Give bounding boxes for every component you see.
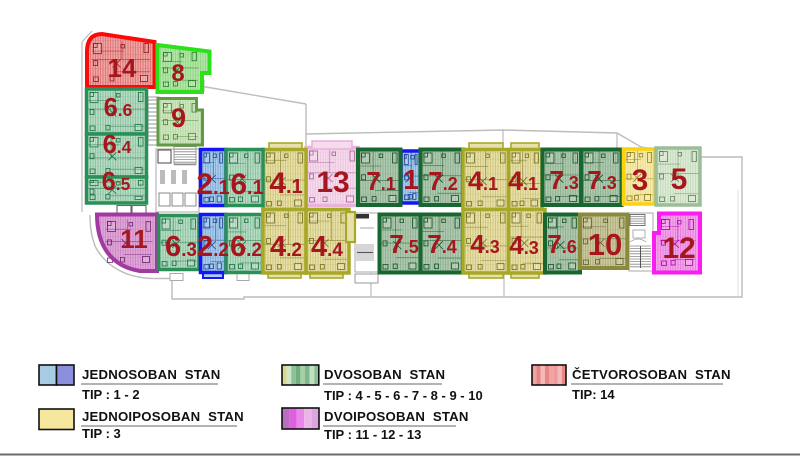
svg-text:10: 10 [588,227,622,262]
svg-text:ČETVOROSOBAN STAN: ČETVOROSOBAN STAN [572,367,731,382]
svg-text:5: 5 [671,163,688,196]
svg-text:TIP : 11 - 12 - 13: TIP : 11 - 12 - 13 [324,427,421,442]
svg-text:14: 14 [108,53,137,83]
svg-text:TIP : 3: TIP : 3 [82,426,121,441]
svg-text:12: 12 [662,232,695,265]
svg-text:DVOSOBAN STAN: DVOSOBAN STAN [324,367,445,382]
svg-text:13: 13 [316,166,349,199]
svg-text:DVOIPOSOBAN STAN: DVOIPOSOBAN STAN [324,409,469,424]
svg-text:TIP : 1 - 2: TIP : 1 - 2 [82,387,140,402]
svg-text:JEDNOSOBAN STAN: JEDNOSOBAN STAN [82,367,221,382]
svg-text:11: 11 [120,224,148,254]
svg-text:TIP: 14: TIP: 14 [572,387,615,402]
svg-text:JEDNOIPOSOBAN STAN: JEDNOIPOSOBAN STAN [82,409,244,424]
svg-text:TIP : 4 - 5 - 6 - 7 - 8 - 9 -: TIP : 4 - 5 - 6 - 7 - 8 - 9 - 10 [324,388,483,403]
svg-text:1: 1 [403,164,419,195]
svg-text:9: 9 [171,103,186,133]
svg-text:8: 8 [171,60,184,87]
svg-text:3: 3 [632,164,649,197]
